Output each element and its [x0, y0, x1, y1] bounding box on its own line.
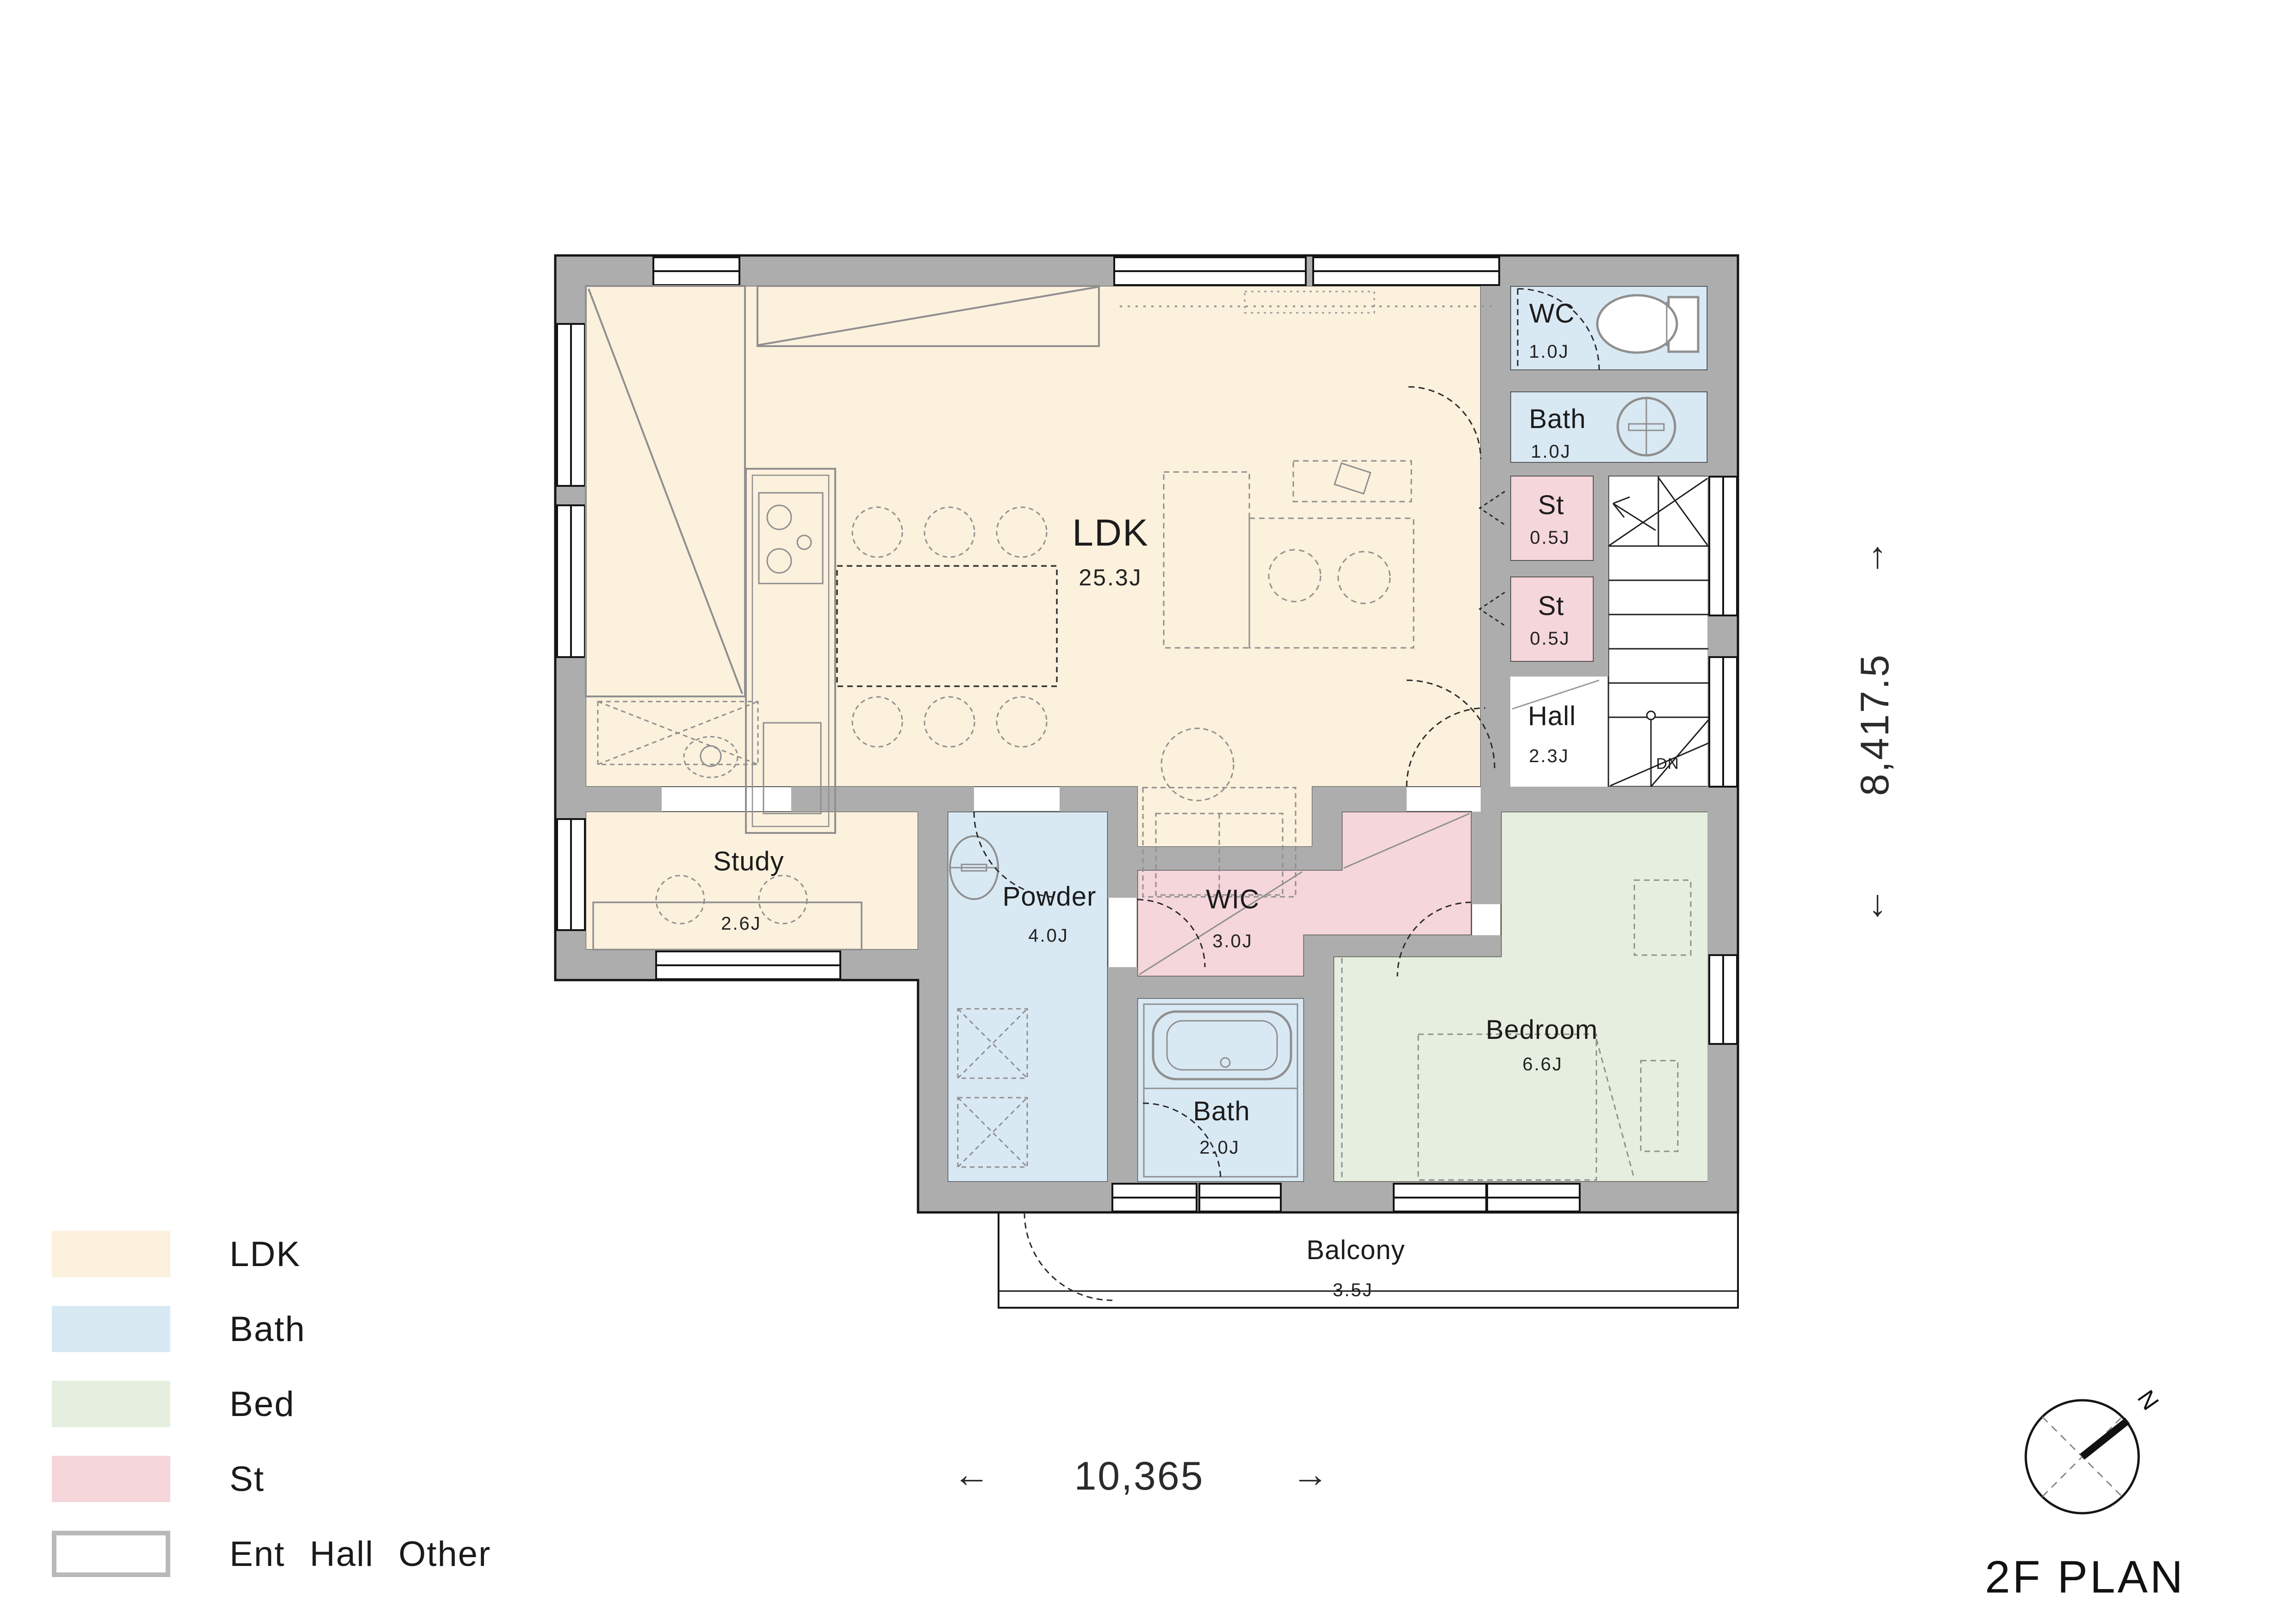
room-label-hall: Hall: [1528, 703, 1576, 730]
room-label-bath1: Bath: [1529, 406, 1586, 433]
width-dimension: 10,365: [1074, 1456, 1204, 1496]
legend-swatch-bath: [52, 1306, 170, 1352]
legend-label-bath: Bath: [230, 1309, 305, 1349]
room-label-study: Study: [713, 848, 784, 875]
room-area-bedroom: 6.6J: [1522, 1055, 1563, 1074]
legend-swatch-ldk: [52, 1231, 170, 1277]
legend-label-bed: Bed: [230, 1384, 295, 1424]
room-label-st2: St: [1538, 593, 1564, 620]
legend-swatch-bed: [52, 1381, 170, 1427]
room-area-bath2: 2.0J: [1199, 1138, 1240, 1157]
width-dim-arrow-left: ←: [953, 1456, 991, 1493]
room-area-bath1: 1.0J: [1531, 442, 1571, 461]
legend-row-bed: Bed: [52, 1381, 491, 1427]
floor-plan-page: LDK 25.3J WC 1.0J Bath 1.0J St 0.5J St 0…: [0, 0, 2296, 1621]
room-label-st1: St: [1538, 492, 1564, 519]
room-label-bath2: Bath: [1193, 1098, 1250, 1125]
width-dim-arrow-right: →: [1292, 1456, 1329, 1493]
legend-swatch-ent-hall-other: [52, 1531, 170, 1577]
room-label-powder: Powder: [1003, 883, 1097, 910]
room-label-balcony: Balcony: [1306, 1237, 1405, 1264]
legend-label-st: St: [230, 1459, 265, 1499]
legend-row-bath: Bath: [52, 1306, 491, 1352]
room-area-wic: 3.0J: [1212, 932, 1253, 950]
page-title: 2F PLAN: [1985, 1551, 2185, 1603]
room-label-wic: WIC: [1206, 886, 1260, 913]
legend-label-ent-hall-other: Ent Hall Other: [230, 1534, 491, 1574]
room-area-st2: 0.5J: [1530, 629, 1570, 648]
room-area-st1: 0.5J: [1530, 528, 1570, 547]
room-area-hall: 2.3J: [1529, 747, 1570, 765]
height-dim-arrow-down: ↓: [1868, 885, 1887, 922]
stairs-down-label: DN: [1656, 756, 1679, 771]
room-area-wc: 1.0J: [1529, 342, 1570, 361]
room-label-bedroom: Bedroom: [1486, 1017, 1598, 1043]
room-label-wc: WC: [1529, 300, 1575, 327]
legend-swatch-st: [52, 1456, 170, 1502]
room-label-ldk: LDK: [1072, 514, 1149, 552]
room-area-ldk: 25.3J: [1079, 566, 1142, 589]
legend-row-st: St: [52, 1456, 491, 1502]
legend-row-ent-hall-other: Ent Hall Other: [52, 1531, 491, 1577]
legend-row-ldk: LDK: [52, 1231, 491, 1277]
room-area-balcony: 3.5J: [1333, 1281, 1373, 1299]
legend: LDK Bath Bed St Ent Hall Other: [52, 1231, 491, 1577]
height-dimension: 8,417.5: [1855, 653, 1895, 796]
legend-label-ldk: LDK: [230, 1234, 301, 1274]
height-dim-arrow-up: ↑: [1868, 537, 1887, 574]
room-area-powder: 4.0J: [1028, 926, 1069, 945]
room-area-study: 2.6J: [721, 914, 762, 933]
